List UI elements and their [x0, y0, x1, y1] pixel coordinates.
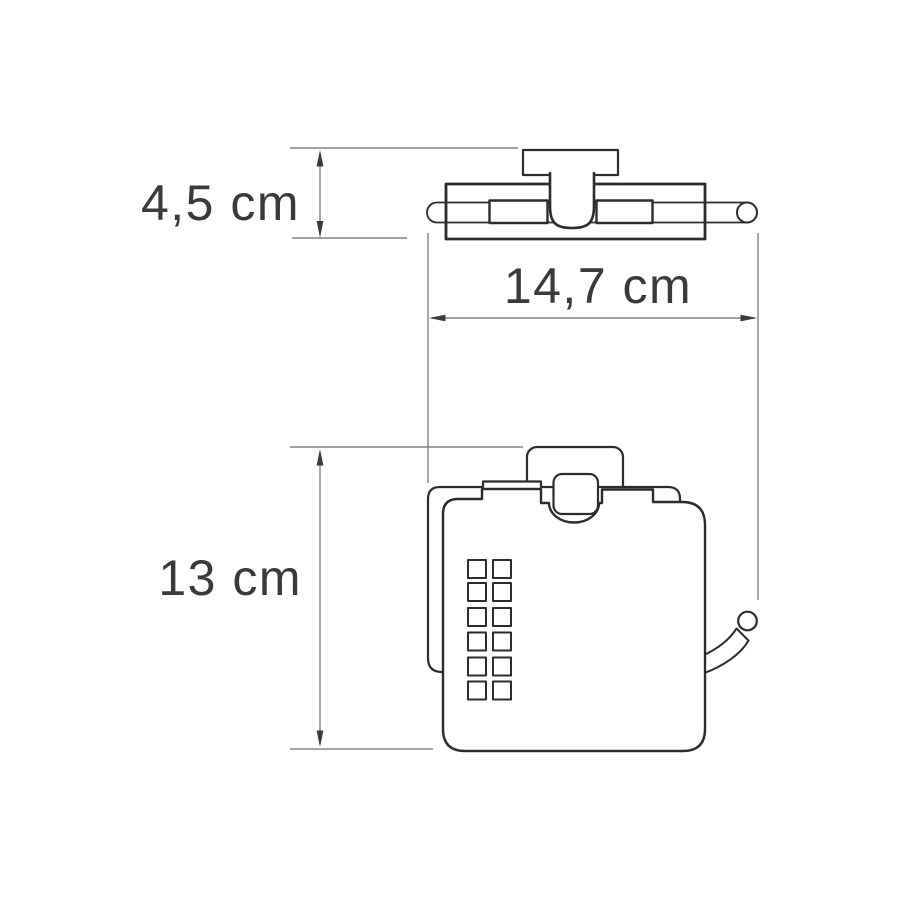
vent-square	[493, 633, 511, 651]
vent-square	[493, 608, 511, 626]
top-view	[427, 150, 757, 239]
vent-square	[468, 608, 486, 626]
depth-arrowhead-down	[317, 221, 324, 238]
front-view-hook-arm	[703, 629, 749, 674]
vent-square	[468, 560, 486, 578]
width-arrowhead-left	[429, 315, 446, 322]
top-view-retainer-left	[490, 201, 548, 224]
height-arrowhead-up	[317, 449, 324, 466]
vent-square	[493, 560, 511, 578]
dimension-diagram: 4,5 cm 14,7 cm 13 cm	[0, 0, 900, 900]
top-view-stem	[550, 173, 594, 228]
top-view-retainer-right	[597, 201, 653, 224]
height-arrowhead-down	[317, 731, 324, 748]
vent-square	[493, 658, 511, 676]
vent-square	[468, 682, 486, 700]
top-view-wall-plate	[523, 150, 618, 175]
vent-square	[468, 658, 486, 676]
vent-square	[468, 583, 486, 601]
front-view	[428, 447, 757, 751]
top-view-roller-ball-end	[737, 203, 757, 223]
front-view-hook-ball	[738, 612, 757, 631]
dimension-label-depth: 4,5 cm	[118, 177, 300, 229]
holder-line-drawing	[0, 0, 900, 900]
vent-square	[493, 682, 511, 700]
dimension-label-width: 14,7 cm	[500, 260, 696, 312]
width-arrowhead-right	[741, 315, 758, 322]
vent-square	[468, 633, 486, 651]
dimension-label-height: 13 cm	[150, 552, 302, 604]
dimension-depth	[290, 148, 518, 238]
depth-arrowhead-up	[317, 150, 324, 167]
front-view-latch-button	[554, 474, 599, 514]
vent-square	[493, 583, 511, 601]
